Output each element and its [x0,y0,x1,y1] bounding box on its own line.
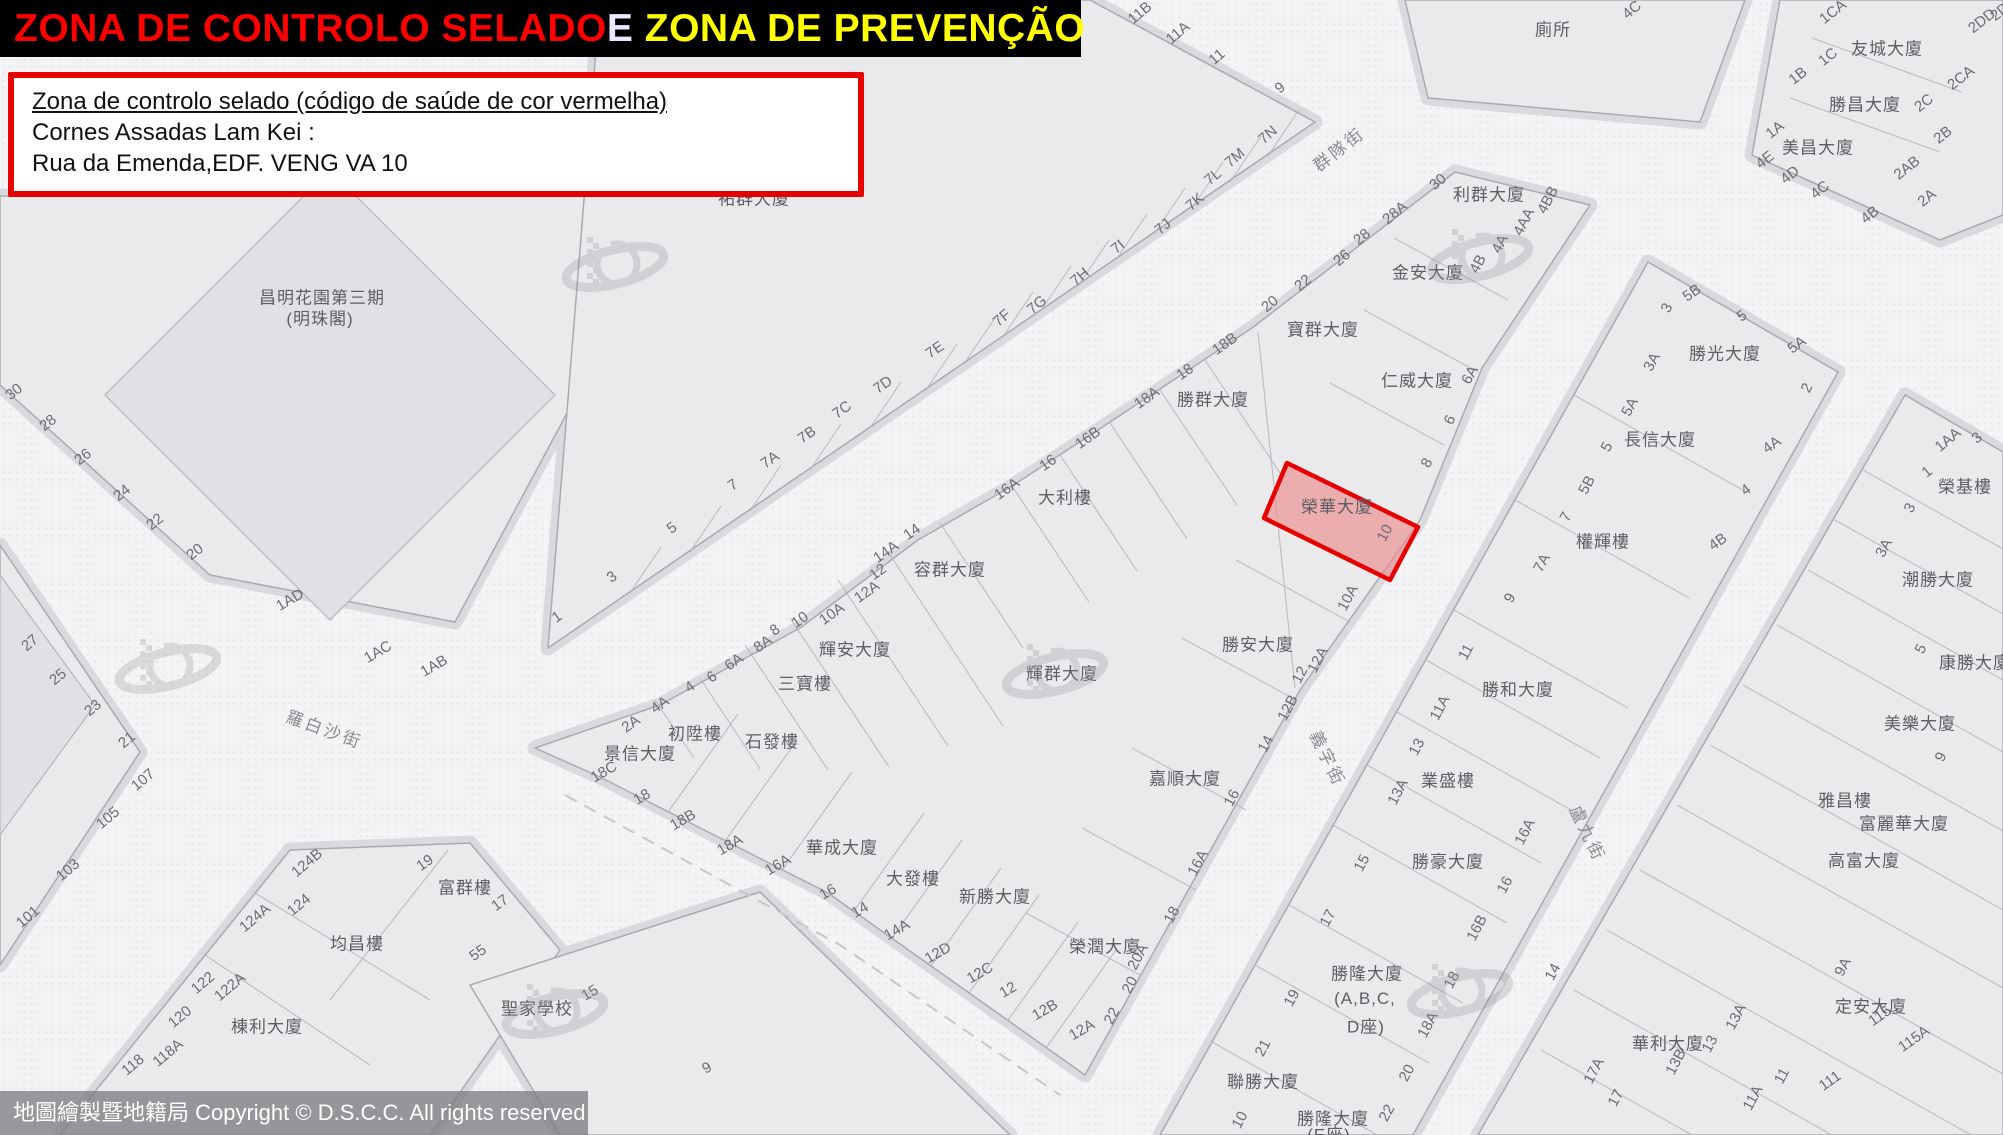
banner-e-text: E [607,7,634,51]
info-box-address: Rua da Emenda,EDF. VENG VA 10 [32,148,844,179]
sealed-zone-info-box: Zona de controlo selado (código de saúde… [8,72,864,197]
map-viewport[interactable]: 群隊街羅白沙街義字街盧九街祐群大廈廁所友城大廈勝昌大廈美昌大廈利群大廈金安大廈寶… [0,0,2003,1135]
info-box-establishment: Cornes Assadas Lam Kei : [32,117,844,148]
copyright-bar: 地圖繪製暨地籍局 Copyright © D.S.C.C. All rights… [0,1091,588,1135]
banner: ZONA DE CONTROLO SELADOE ZONA DE PREVENÇ… [0,0,1081,57]
info-box-title: Zona de controlo selado (código de saúde… [32,86,844,117]
banner-prevention-zone-text: ZONA DE PREVENÇÃO [633,7,1085,51]
banner-sealed-zone-text: ZONA DE CONTROLO SELADO [14,7,607,51]
